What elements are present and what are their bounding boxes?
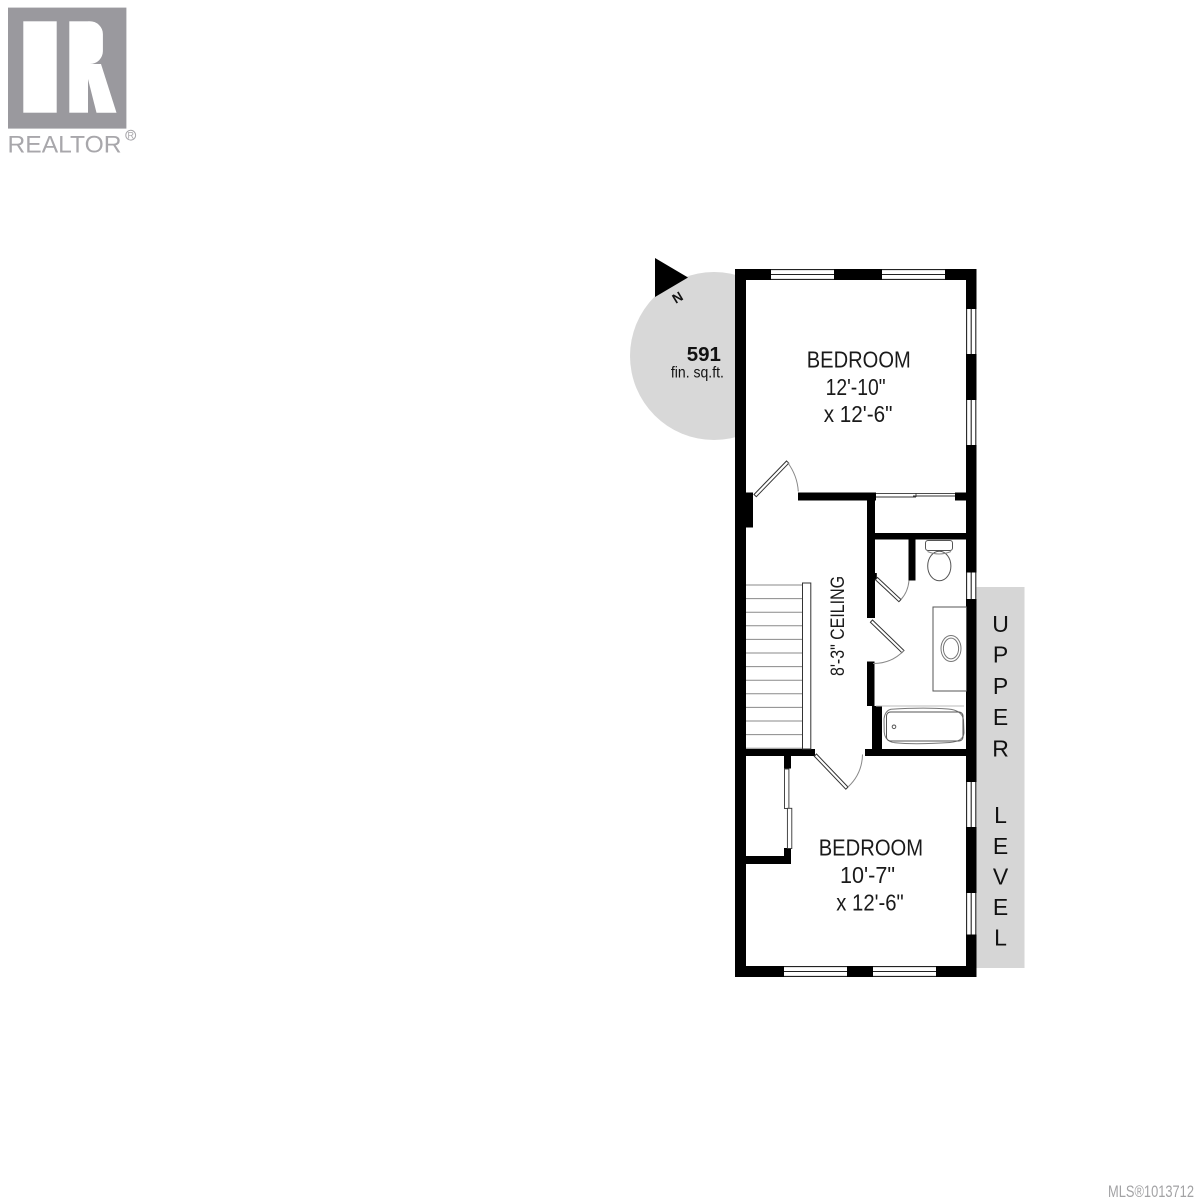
svg-text:591: 591: [687, 343, 721, 366]
svg-text:V: V: [993, 863, 1009, 889]
svg-text:BEDROOM: BEDROOM: [807, 347, 911, 373]
svg-text:L: L: [994, 924, 1007, 950]
svg-text:fin. sq.ft.: fin. sq.ft.: [671, 365, 724, 382]
svg-text:R: R: [127, 130, 134, 140]
svg-text:E: E: [993, 704, 1008, 730]
svg-text:BEDROOM: BEDROOM: [819, 835, 923, 861]
svg-text:E: E: [993, 894, 1008, 920]
svg-text:8'-3" CEILING: 8'-3" CEILING: [828, 576, 849, 676]
svg-text:10'-7": 10'-7": [840, 862, 895, 888]
svg-text:L: L: [994, 802, 1007, 828]
svg-text:P: P: [993, 673, 1008, 699]
svg-text:x 12'-6": x 12'-6": [824, 401, 893, 427]
svg-text:MLS®1013712: MLS®1013712: [1108, 1183, 1194, 1200]
svg-text:12'-10": 12'-10": [826, 374, 886, 400]
svg-text:U: U: [992, 611, 1009, 637]
svg-text:R: R: [992, 735, 1009, 761]
svg-text:E: E: [993, 833, 1008, 859]
svg-text:P: P: [993, 641, 1008, 667]
svg-text:REALTOR: REALTOR: [8, 132, 122, 159]
svg-text:x 12'-6": x 12'-6": [836, 890, 904, 916]
